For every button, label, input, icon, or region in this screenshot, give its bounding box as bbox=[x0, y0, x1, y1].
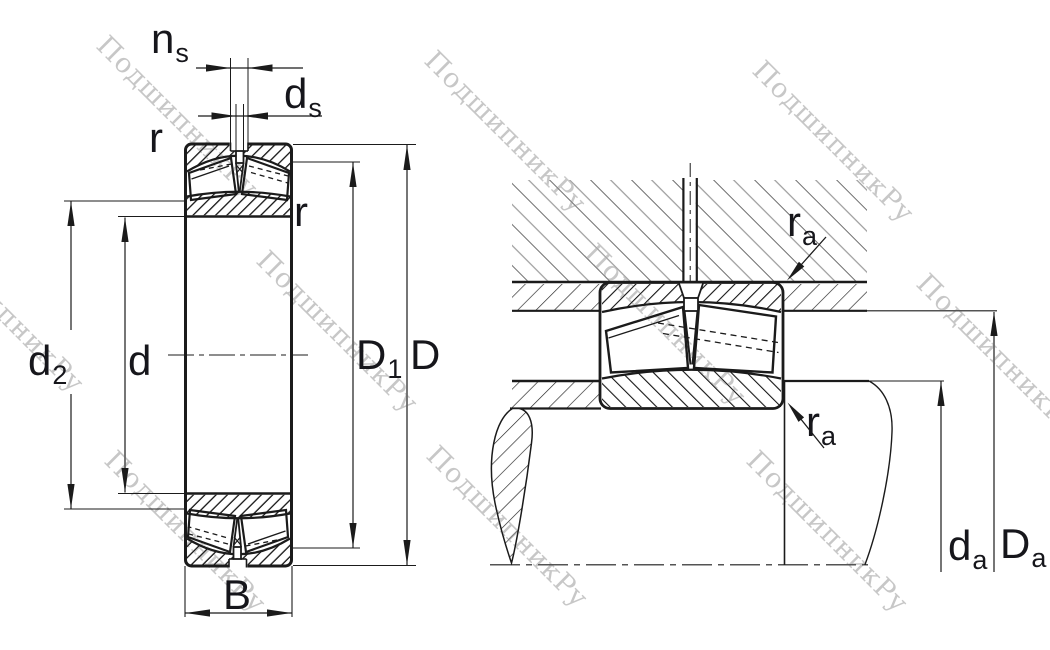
dim-label-d: d bbox=[128, 340, 151, 382]
dim-label-Da: Da bbox=[1000, 523, 1046, 565]
housing-shoulder-right bbox=[783, 284, 867, 311]
dim-label-B: B bbox=[223, 574, 251, 616]
mounted-lubrication-hole bbox=[684, 298, 698, 311]
dim-label-ds: ds bbox=[284, 73, 322, 115]
dim-label-D1: D1 bbox=[356, 334, 402, 376]
dim-label-r-inner: r bbox=[294, 191, 308, 233]
dim-label-ra-top: ra bbox=[787, 201, 817, 243]
shaft-break-section bbox=[491, 409, 532, 564]
mounted-roller-right bbox=[694, 305, 776, 373]
dim-label-d2: d2 bbox=[28, 340, 67, 382]
drawing-canvas bbox=[0, 0, 1050, 650]
dim-label-ra-bottom: ra bbox=[806, 401, 836, 443]
mounted-inner-ring-hatch bbox=[602, 370, 781, 407]
shaft-break-curve bbox=[865, 381, 892, 565]
dim-label-D: D bbox=[410, 334, 440, 376]
dim-label-ns: ns bbox=[151, 18, 189, 60]
dim-label-r-top: r bbox=[149, 117, 163, 159]
inner-ring-hatch bbox=[187, 192, 290, 216]
right-figure-mounting bbox=[490, 163, 998, 572]
lubrication-hole bbox=[236, 151, 244, 163]
housing-shoulder-left bbox=[512, 284, 600, 311]
dim-label-da: da bbox=[948, 525, 987, 567]
shaft-shoulder bbox=[512, 381, 600, 409]
bearing-dimension-drawing: ПодшипникРу ПодшипникРу ПодшипникРу Подш… bbox=[0, 0, 1050, 650]
